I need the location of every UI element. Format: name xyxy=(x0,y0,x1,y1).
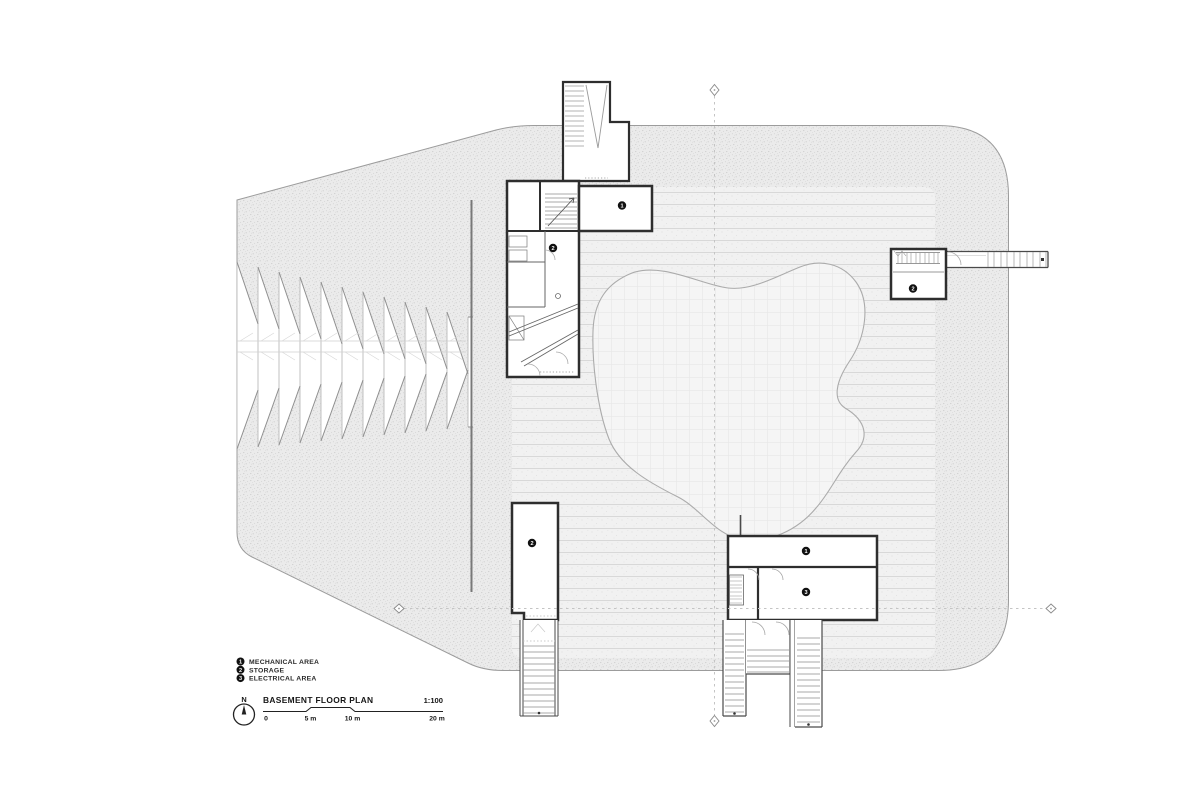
room-marker-mechanical-north: 1 xyxy=(618,201,626,209)
plan-title: BASEMENT FLOOR PLAN xyxy=(263,695,373,705)
title-block: N BASEMENT FLOOR PLAN 1:100 0 5 m 10 m 2… xyxy=(234,695,445,725)
north-arrow: N xyxy=(234,695,255,725)
scale-bar: 0 5 m 10 m 20 m xyxy=(263,708,445,723)
plan-scale: 1:100 xyxy=(424,696,443,705)
room-marker-mechanical-south: 1 xyxy=(802,547,810,555)
legend-number: 1 xyxy=(239,660,242,666)
section-marker-right xyxy=(1046,604,1056,613)
west-storage-room xyxy=(512,503,558,620)
marker-number: 2 xyxy=(551,246,554,252)
shaft-right xyxy=(795,620,822,727)
legend: 1 MECHANICAL AREA 2 STORAGE 3 ELECTRICAL… xyxy=(237,658,320,683)
legend-number: 2 xyxy=(239,668,242,674)
scale-label-5m: 5 m xyxy=(305,716,317,723)
section-marker-bottom xyxy=(710,716,719,727)
blueprint-page: 1 2 2 2 1 3 1 MECHANICAL AREA xyxy=(0,0,1200,800)
shaft-left xyxy=(723,620,746,716)
west-exit-stair-shaft xyxy=(520,620,558,716)
marker-number: 3 xyxy=(804,590,807,596)
west-wing xyxy=(512,503,558,716)
marker-number: 1 xyxy=(620,204,623,210)
room-marker-storage-east: 2 xyxy=(909,284,917,292)
shaft-right-dot xyxy=(807,723,810,726)
legend-item-electrical: 3 ELECTRICAL AREA xyxy=(237,674,317,683)
south-exit-stairs xyxy=(723,620,822,727)
room-marker-storage-west: 2 xyxy=(528,539,536,547)
south-building-body xyxy=(728,536,877,620)
legend-label: MECHANICAL AREA xyxy=(249,659,319,666)
room-marker-storage-north: 2 xyxy=(549,244,557,252)
marker-number: 1 xyxy=(804,549,807,555)
legend-item-storage: 2 STORAGE xyxy=(237,666,285,675)
marker-number: 2 xyxy=(530,541,533,547)
entry-stair-north xyxy=(563,82,629,181)
floor-plan-svg: 1 2 2 2 1 3 1 MECHANICAL AREA xyxy=(0,0,1200,800)
scale-label-10m: 10 m xyxy=(345,716,361,723)
scale-label-0: 0 xyxy=(264,716,268,723)
legend-label: STORAGE xyxy=(249,667,284,674)
marker-number: 2 xyxy=(911,287,914,293)
legend-item-mechanical: 1 MECHANICAL AREA xyxy=(237,658,320,667)
scale-label-20m: 20 m xyxy=(429,716,445,723)
west-stair-dot xyxy=(538,712,541,715)
legend-number: 3 xyxy=(239,676,242,682)
north-building-hall xyxy=(507,181,579,377)
mechanical-room xyxy=(579,186,652,231)
bay-middle xyxy=(746,620,790,674)
shaft-left-dot xyxy=(733,712,736,715)
wall-gap xyxy=(790,620,795,727)
south-building xyxy=(723,515,877,727)
section-marker-top xyxy=(710,85,719,96)
legend-label: ELECTRICAL AREA xyxy=(249,676,317,683)
room-marker-electrical-south: 3 xyxy=(802,588,810,596)
bridge-end-dot xyxy=(1041,258,1044,261)
north-arrow-label: N xyxy=(241,695,246,704)
